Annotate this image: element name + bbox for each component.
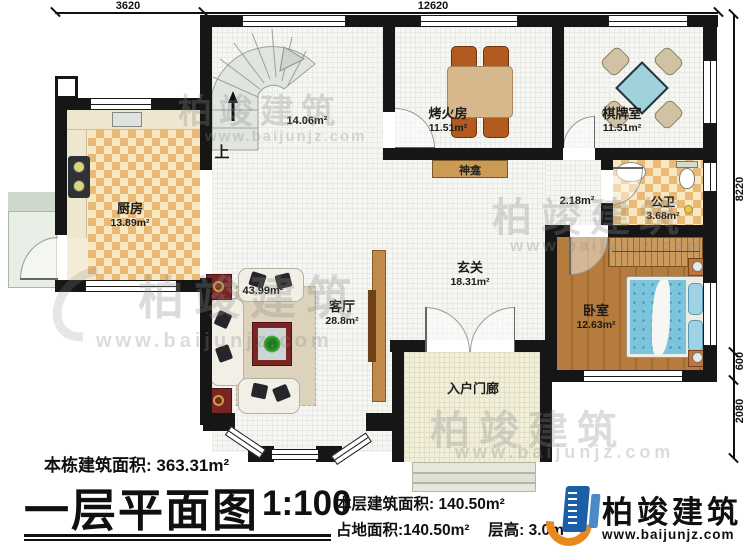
stove-burner (73, 180, 85, 192)
window (583, 370, 683, 382)
closet-rod (612, 251, 700, 252)
door-leaf (20, 278, 58, 280)
room-label-hallway: 玄关 18.31m² (440, 261, 500, 288)
room-label-bathroom: 公卫 3.68m² (636, 196, 690, 222)
toilet-bowl (679, 168, 695, 189)
sheet-title: 一层平面图 (24, 474, 259, 539)
corridor-area-label: 2.18m² (547, 195, 607, 208)
wall (608, 225, 715, 237)
shrine-label: 神龛 (459, 165, 481, 177)
door-leaf (569, 237, 571, 275)
flue-box (55, 76, 78, 99)
wall (200, 278, 212, 425)
wall (601, 203, 613, 225)
stairwell-area-label: 14.06m² (270, 115, 344, 128)
dimension-line-top (55, 12, 718, 14)
patio-band (8, 192, 57, 212)
wall (595, 148, 715, 160)
window (703, 162, 717, 192)
room-label-porch: 入户门廊 (428, 382, 518, 397)
entry-door-leaf (425, 307, 427, 352)
wall (392, 352, 404, 462)
total-building-area: 本栋建筑面积: 363.31m² (44, 451, 229, 476)
dim-right-1: 8220 (734, 167, 746, 211)
wall (601, 158, 613, 170)
door-leaf (594, 116, 596, 148)
wall (383, 148, 563, 160)
bed-pillow (688, 283, 703, 315)
wall (515, 340, 552, 352)
floor-area: 本层建筑面积: 140.50m² (336, 492, 505, 514)
side-table-lamp (213, 395, 224, 406)
wall (55, 98, 67, 235)
window (608, 15, 688, 27)
stove-burner (73, 161, 85, 173)
porch-step (412, 462, 536, 473)
kitchen-sink (112, 112, 142, 127)
brand-name: 柏竣建筑 (602, 487, 742, 532)
corridor-floor (545, 160, 601, 225)
bay-post (366, 413, 398, 431)
porch-floor (404, 352, 540, 462)
door-leaf (613, 167, 643, 169)
room-label-kitchen: 厨房 13.89m² (95, 202, 165, 229)
window (420, 15, 518, 27)
window (703, 60, 717, 124)
brand-url: www.baijunjz.com (602, 527, 735, 542)
plant (263, 335, 281, 353)
room-label-living: 客厅 28.8m² (312, 300, 372, 327)
window (85, 280, 177, 292)
title-underline (24, 539, 331, 541)
dim-right-3: 2080 (734, 389, 746, 433)
brand-logo-icon (546, 484, 602, 550)
wall (390, 340, 425, 352)
porch-step (412, 483, 536, 492)
ground-area-line: 占地面积:140.50m² 层高: 3.0m (336, 518, 564, 540)
wall (200, 15, 212, 170)
bay-window (271, 449, 319, 460)
logo-building-windows (568, 492, 577, 524)
room-label-bedroom: 卧室 12.63m² (566, 304, 626, 331)
title-underline (24, 534, 331, 537)
wall (383, 27, 395, 112)
logo-building-side (589, 494, 601, 528)
wall (540, 352, 552, 462)
window (242, 15, 346, 27)
floor-plan-sheet: 神龛 (0, 0, 750, 560)
side-table-lamp (213, 281, 224, 292)
porch-step (412, 473, 536, 483)
window (703, 282, 717, 346)
dim-right-2: 600 (734, 339, 746, 383)
nightstand-lamp (692, 352, 703, 363)
dim-top-1: 3620 (93, 0, 163, 12)
nightstand-lamp (692, 261, 703, 272)
stair-up-label: 上 (210, 144, 234, 161)
dim-top-2: 12620 (398, 0, 468, 12)
shrine: 神龛 (432, 160, 508, 178)
window (90, 98, 152, 110)
sofa-pillow (251, 383, 269, 400)
ground-area: 占地面积:140.50m² (336, 522, 470, 539)
bed-pillow (688, 320, 703, 352)
spiral-stairs (206, 25, 318, 155)
sofa-left (210, 298, 244, 386)
wall (552, 27, 564, 148)
toilet-tank (676, 161, 698, 168)
